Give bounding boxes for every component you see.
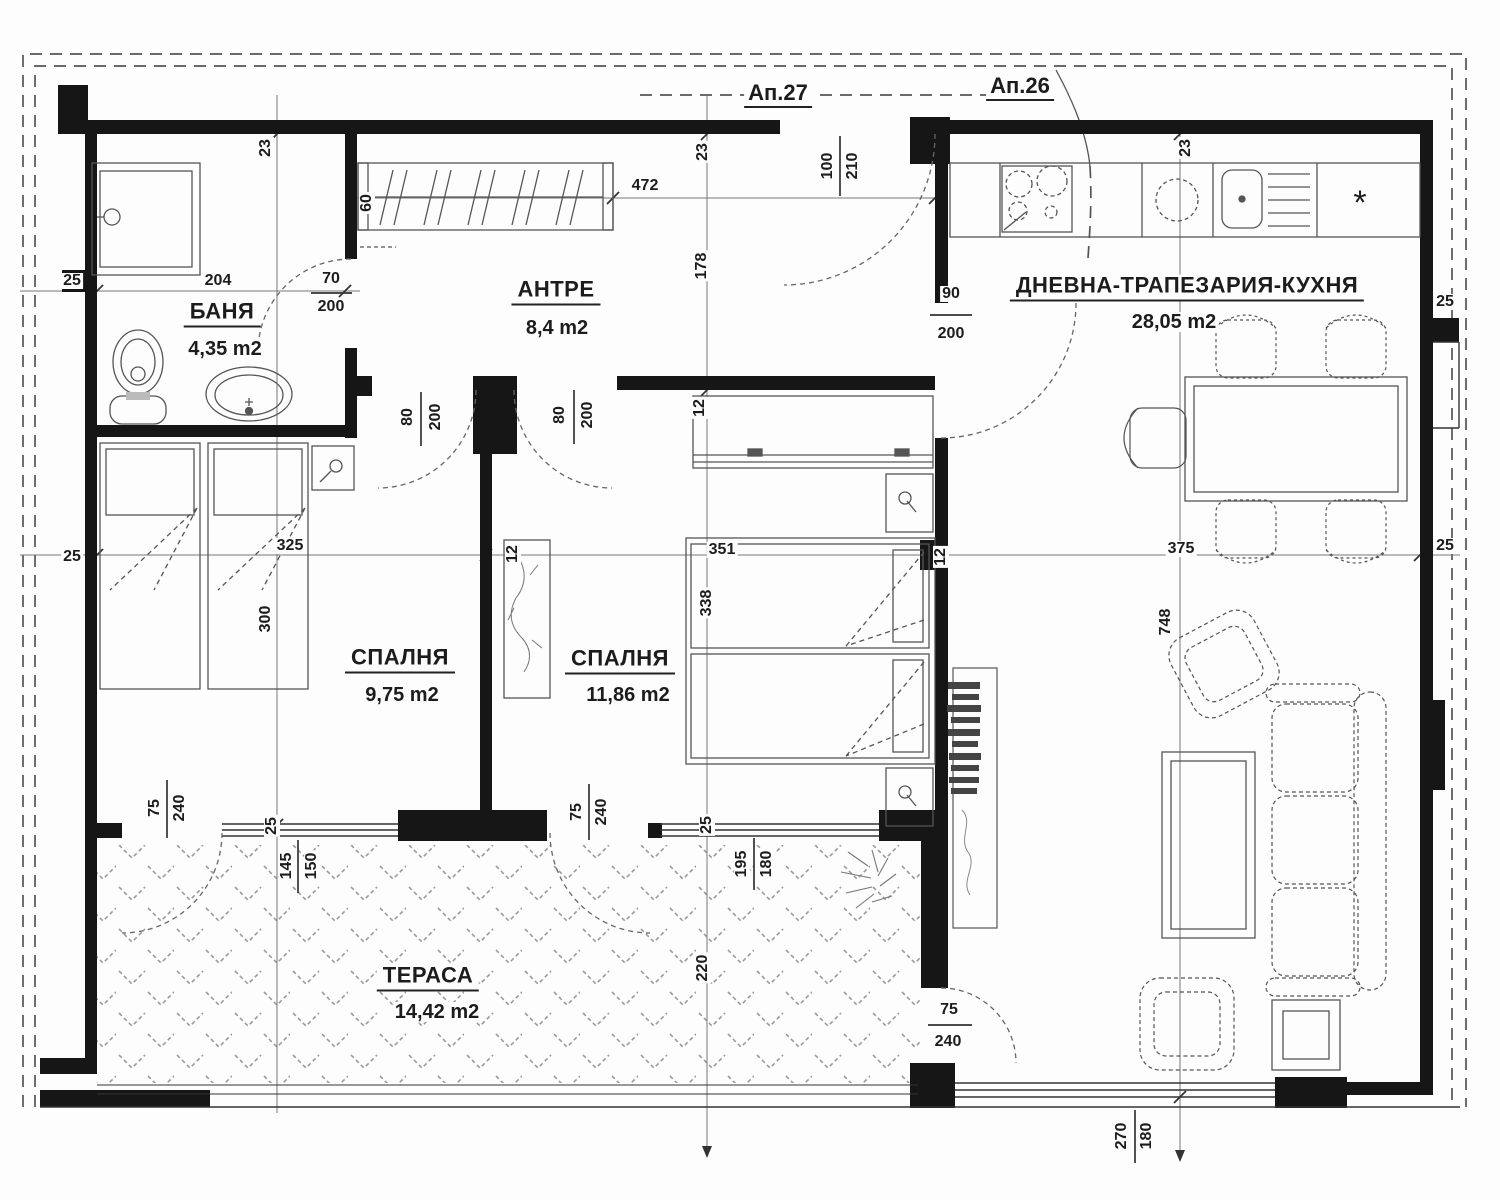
room-hall-name: АНТРЕ (511, 279, 600, 306)
room-terrace-name: ТЕРАСА (377, 965, 479, 992)
floor-plan-drawing (0, 0, 1500, 1200)
dim-210: 210 (845, 151, 861, 182)
room-bedroom1-area: 9,75 m2 (363, 685, 440, 705)
dim-200: 200 (580, 400, 596, 431)
dim-325: 325 (275, 538, 306, 554)
side-table (1272, 1000, 1340, 1070)
dim-200: 200 (428, 402, 444, 433)
apartment-label-27: Ап.27 (744, 82, 812, 108)
sink (206, 367, 292, 421)
stove (1002, 166, 1072, 232)
dim-351: 351 (707, 542, 738, 558)
apartment-label-26: Ап.26 (986, 75, 1054, 101)
dim-90: 90 (940, 286, 962, 302)
room-bedroom2-area: 11,86 m2 (584, 685, 671, 705)
hall-wardrobe (358, 163, 613, 247)
dim-180: 180 (759, 849, 775, 880)
dim-75: 75 (569, 801, 585, 823)
room-bathroom-name: БАНЯ (184, 301, 261, 328)
room-bedroom1-name: СПАЛНЯ (345, 647, 455, 674)
toilet (110, 330, 166, 424)
dining-chairs (1124, 315, 1386, 563)
bedroom2-wardrobe (693, 396, 933, 468)
kitchen-door-arc (941, 303, 1076, 438)
dim-220: 220 (695, 953, 711, 984)
dim-240: 240 (933, 1034, 964, 1050)
dim-23: 23 (258, 137, 274, 159)
shower (92, 163, 200, 275)
dim-204: 204 (203, 273, 234, 289)
dim-270: 270 (1114, 1121, 1130, 1152)
dim-23: 23 (695, 141, 711, 163)
dim-12: 12 (505, 543, 521, 565)
dim-100: 100 (820, 151, 836, 182)
sofa (1266, 684, 1386, 996)
kitchen-counter (950, 163, 1420, 237)
dim-25: 25 (1434, 538, 1456, 554)
floor-plan: Ап.27 Ап.26 БАНЯ 4,35 m2 АНТРЕ 8,4 m2 СП… (0, 0, 1500, 1200)
lamp-icon (330, 460, 342, 472)
bedroom2-beds (686, 538, 935, 764)
dim-25: 25 (699, 814, 715, 836)
dim-25: 25 (61, 273, 83, 289)
apartment-leader (1056, 70, 1090, 166)
kitchen-sink (1222, 170, 1310, 228)
room-living-name: ДНЕВНА-ТРАПЕЗАРИЯ-КУХНЯ (1010, 275, 1364, 302)
dim-12: 12 (692, 397, 708, 419)
dim-195: 195 (734, 849, 750, 880)
dim-145: 145 (279, 851, 295, 882)
bedroom2-nightstands (886, 474, 933, 826)
dim-60: 60 (359, 192, 375, 214)
dim-75: 75 (147, 797, 163, 819)
dim-200: 200 (936, 326, 967, 342)
room-terrace-area: 14,42 m2 (393, 1002, 482, 1022)
dim-240: 240 (172, 793, 188, 824)
dim-25: 25 (1434, 294, 1456, 310)
dim-12: 12 (933, 546, 949, 568)
armchair-bottom (1140, 978, 1234, 1070)
dim-80: 80 (400, 406, 416, 428)
hob-circle (1156, 179, 1198, 221)
terrace-hatch (97, 845, 920, 1083)
coffee-table (1162, 752, 1255, 938)
dim-200: 200 (316, 299, 347, 315)
dim-70: 70 (320, 271, 342, 287)
dim-150: 150 (304, 851, 320, 882)
dim-338: 338 (699, 588, 715, 619)
room-living-area: 28,05 m2 (1130, 312, 1219, 332)
dim-300: 300 (258, 604, 274, 635)
axis-arrow (1175, 1150, 1185, 1162)
decor-scribble (962, 810, 971, 895)
dim-75: 75 (938, 1002, 960, 1018)
bedroom1-nightstand (312, 446, 354, 490)
lamp-icon (899, 492, 911, 504)
dim-375: 375 (1166, 541, 1197, 557)
dim-748: 748 (1158, 607, 1174, 638)
lamp-icon (899, 786, 911, 798)
tv (947, 682, 981, 794)
axis-arrow (702, 1146, 712, 1158)
dim-25: 25 (264, 815, 280, 837)
dim-23: 23 (1178, 137, 1194, 159)
room-hall-area: 8,4 m2 (524, 318, 590, 338)
dim-472: 472 (630, 178, 661, 194)
dim-80: 80 (552, 404, 568, 426)
dim-180: 180 (1139, 1121, 1155, 1152)
room-bedroom2-name: СПАЛНЯ (565, 648, 675, 675)
dining-table (1185, 377, 1407, 501)
dim-240: 240 (594, 797, 610, 828)
dim-178: 178 (694, 251, 710, 282)
dim-25: 25 (61, 549, 83, 565)
boiler-symbol: * (1351, 186, 1368, 220)
room-bathroom-area: 4,35 m2 (186, 339, 263, 359)
